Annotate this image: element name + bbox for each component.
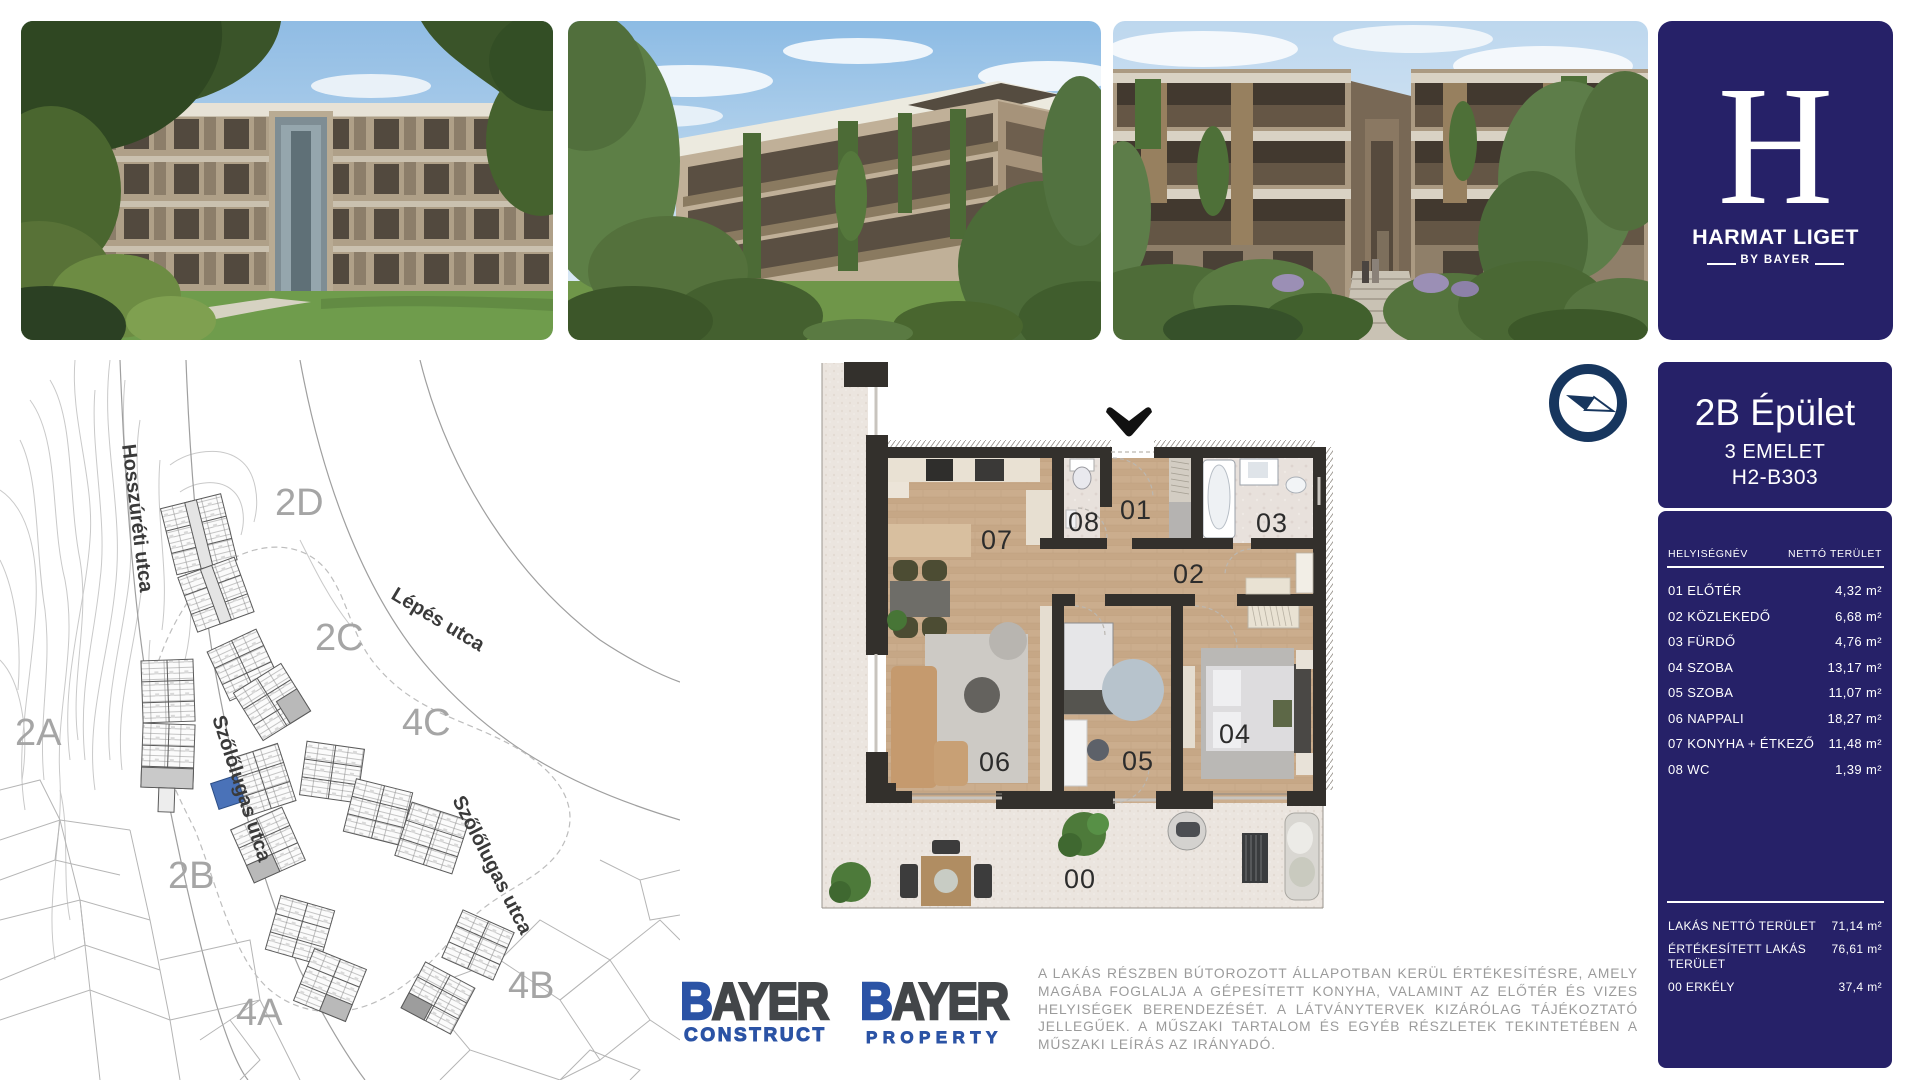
svg-text:CONSTRUCT: CONSTRUCT: [684, 1025, 827, 1046]
svg-text:04: 04: [1219, 719, 1251, 749]
svg-text:AYER: AYER: [892, 975, 1009, 1031]
svg-text:06: 06: [979, 747, 1011, 777]
svg-text:00: 00: [1064, 864, 1096, 894]
svg-text:2A: 2A: [15, 712, 62, 754]
svg-text:03: 03: [1256, 508, 1288, 538]
svg-text:B: B: [680, 975, 713, 1031]
svg-text:08: 08: [1068, 507, 1100, 537]
svg-text:05: 05: [1122, 746, 1154, 776]
svg-text:2D: 2D: [275, 482, 324, 524]
svg-text:2B: 2B: [168, 855, 214, 897]
svg-text:4C: 4C: [402, 702, 451, 744]
svg-text:02: 02: [1173, 559, 1205, 589]
svg-text:4A: 4A: [236, 992, 283, 1034]
svg-text:07: 07: [981, 525, 1013, 555]
svg-text:2C: 2C: [315, 617, 364, 659]
svg-text:4B: 4B: [508, 965, 554, 1007]
svg-text:B: B: [860, 975, 893, 1031]
svg-text:PROPERTY: PROPERTY: [866, 1028, 1003, 1047]
svg-text:01: 01: [1120, 495, 1152, 525]
svg-text:AYER: AYER: [712, 975, 829, 1031]
